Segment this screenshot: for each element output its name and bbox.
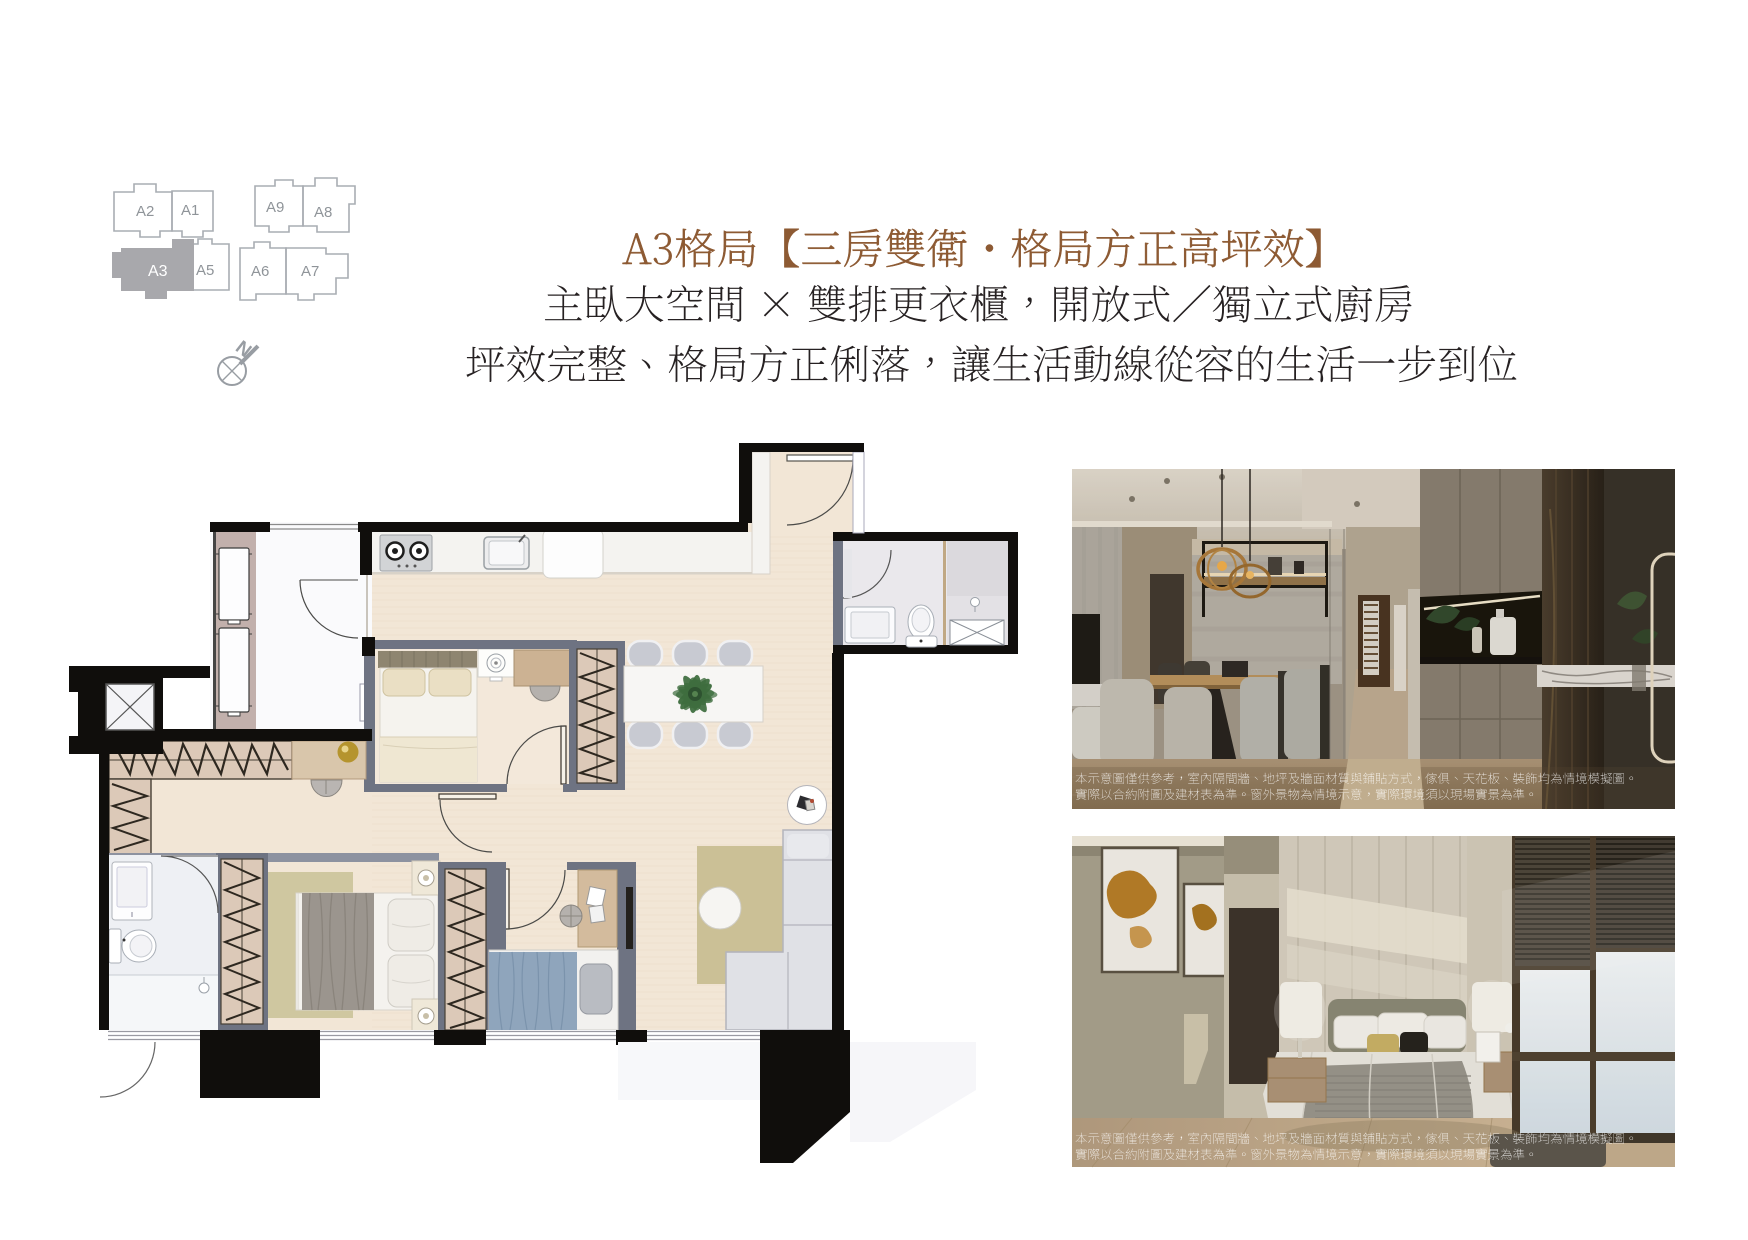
- svg-text:A5: A5: [196, 262, 214, 279]
- svg-text:A2: A2: [136, 203, 154, 220]
- svg-text:A9: A9: [266, 199, 284, 216]
- svg-text:A3: A3: [148, 263, 168, 280]
- svg-text:A1: A1: [181, 202, 199, 219]
- svg-text:A8: A8: [314, 204, 332, 221]
- svg-text:A7: A7: [301, 263, 319, 280]
- svg-text:A6: A6: [251, 263, 269, 280]
